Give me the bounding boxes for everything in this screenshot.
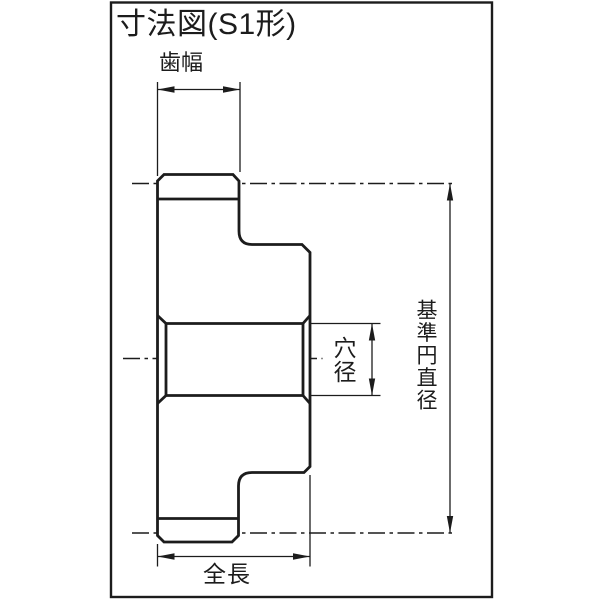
bore-diameter-label: 穴径 xyxy=(331,336,354,384)
gear-dimension-drawing xyxy=(0,0,600,600)
pitch-diameter-label: 基準円直径 xyxy=(415,299,436,412)
page-title: 寸法図(S1形) xyxy=(116,8,297,41)
overall-length-label: 全長 xyxy=(203,562,251,587)
dimension-drawing-canvas: 寸法図(S1形) 歯幅 穴径 基準円直径 全長 xyxy=(0,0,600,600)
face-width-label: 歯幅 xyxy=(158,51,204,75)
